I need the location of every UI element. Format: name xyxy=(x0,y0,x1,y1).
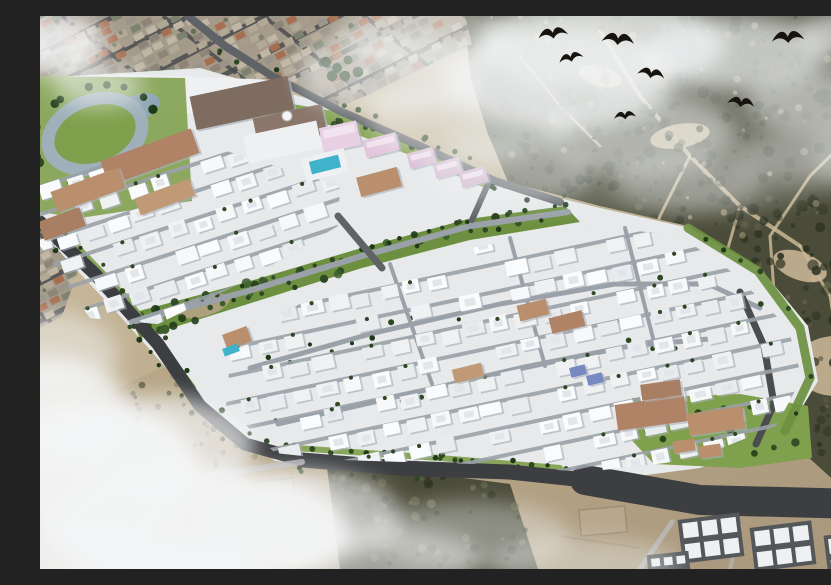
scene-svg xyxy=(40,16,831,569)
aerial-masterplan-render xyxy=(40,16,831,569)
